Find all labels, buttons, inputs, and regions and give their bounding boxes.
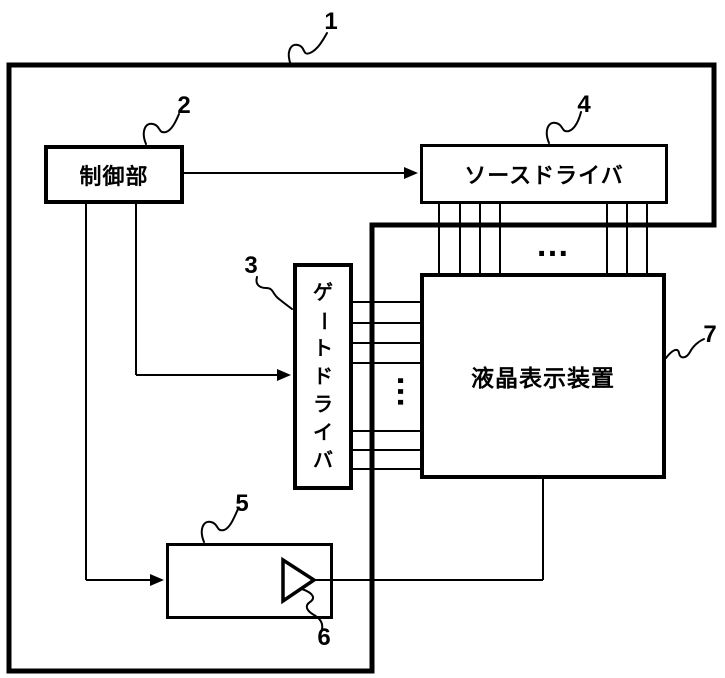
leader-ref-5 xyxy=(202,509,238,542)
ref-label-gate-driver: 3 xyxy=(244,254,257,278)
source-bus-ellipsis: … xyxy=(536,228,571,262)
leader-ref-1 xyxy=(289,33,327,65)
leader-ref-3 xyxy=(256,277,292,309)
gate-driver-label: ゲートドライバ xyxy=(313,279,333,475)
leader-ref-4 xyxy=(547,112,581,143)
ref-label-display: 7 xyxy=(703,323,716,347)
arrowhead-into-gate xyxy=(277,369,291,381)
ref-label-source-driver: 4 xyxy=(577,93,590,117)
leader-ref-7 xyxy=(666,339,704,358)
gate-driver-box: ゲートドライバ xyxy=(293,263,353,490)
circuit-box xyxy=(166,543,333,619)
arrowhead-into-source xyxy=(404,167,418,179)
lcd-panel-box: 液晶表示装置 xyxy=(420,273,666,479)
control-unit-label: 制御部 xyxy=(79,159,148,191)
lcd-panel-label: 液晶表示装置 xyxy=(471,359,615,393)
ref-label-control: 2 xyxy=(177,94,190,118)
ref-label-circuit: 5 xyxy=(235,492,248,516)
ref-label-device: 1 xyxy=(324,10,337,34)
patent-figure-canvas: 制御部 ソースドライバ ゲートドライバ 液晶表示装置 … … 1 2 3 4 5… xyxy=(0,0,725,678)
source-driver-label: ソースドライバ xyxy=(464,158,623,190)
gate-bus-ellipsis: … xyxy=(392,375,426,410)
arrowhead-into-circuit xyxy=(150,574,164,586)
source-driver-box: ソースドライバ xyxy=(420,144,668,204)
ref-label-amplifier: 6 xyxy=(317,626,330,650)
control-unit-box: 制御部 xyxy=(44,145,184,204)
leader-ref-2 xyxy=(144,114,179,144)
